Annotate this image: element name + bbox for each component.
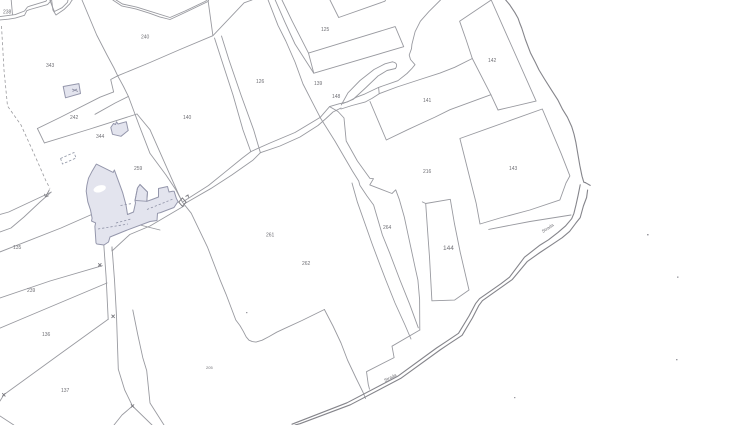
svg-text:126: 126 [256, 79, 265, 85]
svg-text:148: 148 [332, 94, 341, 100]
svg-text:125: 125 [321, 27, 330, 33]
svg-text:205: 205 [206, 365, 213, 370]
svg-text:142: 142 [488, 58, 497, 64]
svg-text:216: 216 [423, 169, 432, 175]
svg-text:139: 139 [314, 81, 323, 87]
svg-text:238: 238 [3, 10, 12, 16]
svg-text:136: 136 [42, 332, 51, 338]
svg-text:242: 242 [70, 115, 79, 121]
svg-text:141: 141 [423, 98, 432, 104]
svg-text:344: 344 [96, 134, 105, 140]
svg-text:240: 240 [141, 35, 150, 41]
svg-text:135: 135 [13, 245, 22, 251]
svg-text:143: 143 [509, 166, 518, 172]
svg-text:144: 144 [443, 245, 454, 252]
svg-text:264: 264 [383, 225, 392, 231]
svg-text:259: 259 [134, 166, 143, 172]
svg-text:137: 137 [61, 388, 70, 394]
svg-text:262: 262 [302, 261, 311, 267]
svg-text:239: 239 [27, 288, 36, 294]
svg-text:343: 343 [46, 63, 55, 69]
svg-text:261: 261 [266, 233, 275, 239]
svg-text:140: 140 [183, 115, 192, 121]
